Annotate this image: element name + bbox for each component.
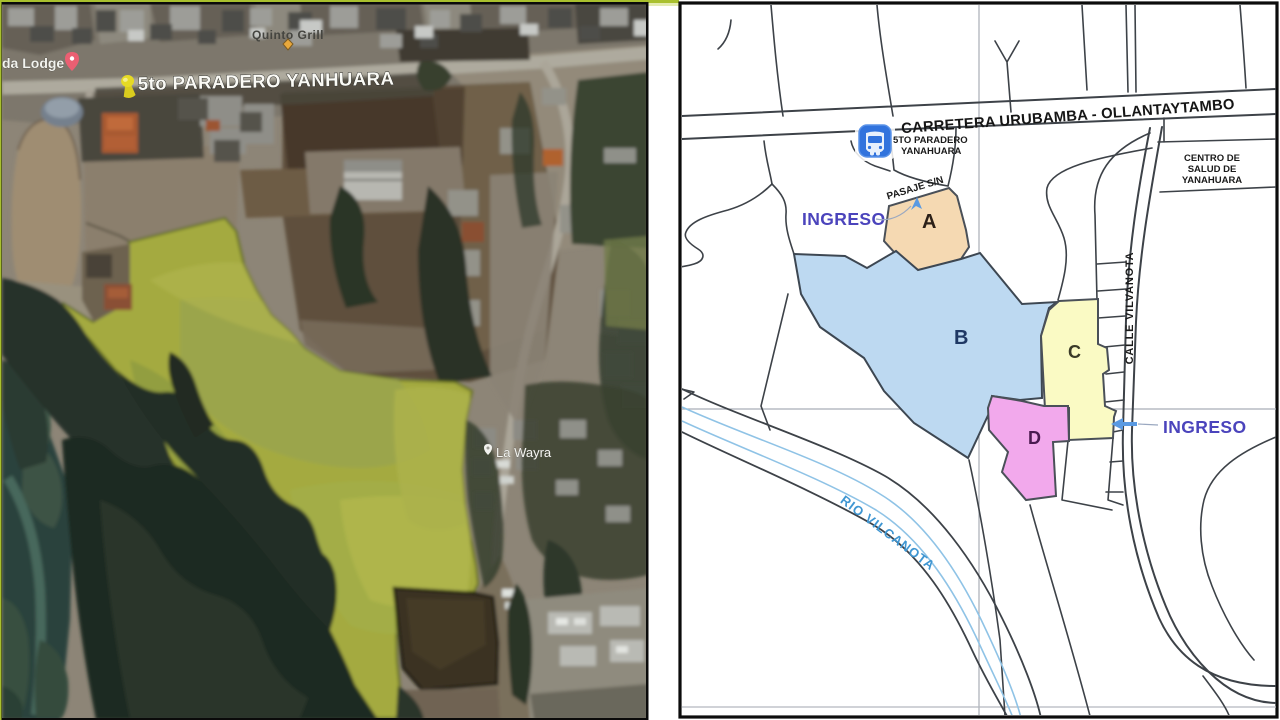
svg-text:CENTRO DE: CENTRO DE [1184, 153, 1240, 164]
svg-text:5TO PARADERO: 5TO PARADERO [893, 135, 968, 146]
svg-text:D: D [1028, 428, 1041, 448]
svg-text:YANAHUARA: YANAHUARA [901, 146, 961, 157]
svg-text:SALUD DE: SALUD DE [1188, 164, 1237, 175]
svg-text:B: B [954, 327, 968, 349]
svg-text:INGRESO: INGRESO [1163, 417, 1247, 437]
svg-text:CALLE VILVANOTA: CALLE VILVANOTA [1124, 252, 1136, 365]
svg-text:INGRESO: INGRESO [802, 209, 886, 229]
svg-text:La Wayra: La Wayra [496, 445, 552, 460]
svg-text:YANAHUARA: YANAHUARA [1182, 175, 1242, 186]
svg-text:C: C [1068, 342, 1081, 362]
svg-text:A: A [922, 211, 936, 233]
svg-text:da Lodge: da Lodge [2, 55, 64, 71]
